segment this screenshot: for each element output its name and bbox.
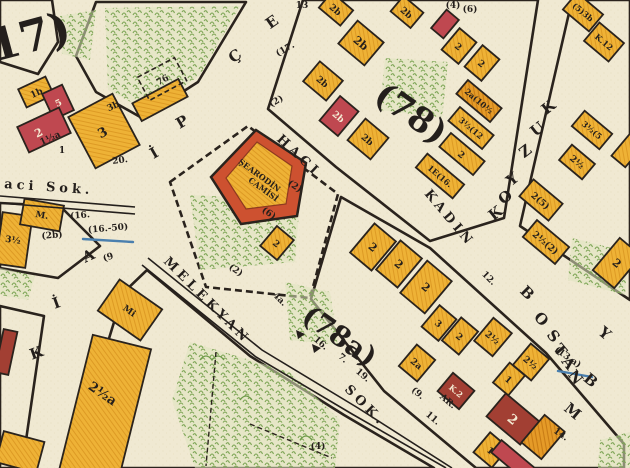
measurement: (16. [70,209,91,222]
historic-insurance-map: 1b 5 2 3 3½ M. Mi 2½a 2 2b 2b 2b 2b 2b 2… [0,0,630,468]
measurement: 1 [59,146,65,156]
measurement: 13 [296,1,309,11]
measurement: (2b) [41,229,63,242]
parcel: M. [20,199,64,232]
measurement: (4) [311,441,326,452]
measurement: (4) [446,0,461,11]
map-canvas: 1b 5 2 3 3½ M. Mi 2½a 2 2b 2b 2b 2b 2b 2… [0,0,630,468]
measurement: (6) [463,4,478,15]
parcel-label: 3½ [4,234,21,247]
